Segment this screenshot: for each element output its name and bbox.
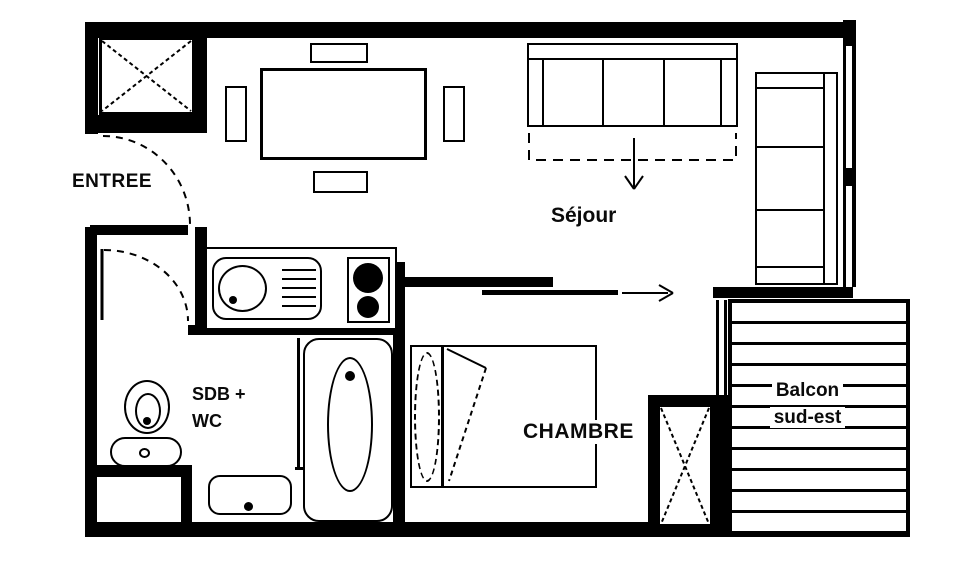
washbasin-drain-dot [244, 502, 253, 511]
drainboard-line [282, 305, 316, 307]
pillow-icon [414, 352, 440, 482]
drainboard-line [282, 287, 316, 289]
drainboard-line [282, 296, 316, 298]
drainboard-line [282, 269, 316, 271]
sink-drain-dot [229, 296, 237, 304]
chair-left-icon [225, 86, 247, 142]
chair-top-icon [310, 43, 368, 63]
toilet-drain-dot [143, 417, 151, 425]
sofa-bed-extension-dashed [529, 133, 736, 160]
wall-closet-right [195, 36, 207, 133]
window-east-line-outer [843, 46, 846, 287]
sink-basin [218, 265, 267, 312]
chair-bottom-icon [313, 171, 368, 193]
balcon-label-line1: Balcon [772, 380, 843, 401]
burner-small [357, 296, 379, 318]
room-label-entree: ENTREE [72, 171, 152, 193]
wall-sliding-track [403, 277, 553, 287]
wall-shower-niche-right [181, 477, 192, 523]
room-label-sdb: SDB + WC [192, 381, 246, 435]
sliding-door-panel [482, 290, 618, 295]
wall-bathtub-side-foot [295, 467, 303, 470]
room-label-chambre: CHAMBRE [520, 420, 637, 444]
door-swing-arc-sdb [104, 250, 188, 321]
wall-closet-bottom [85, 115, 207, 133]
balcon-label-line2: sud-est [770, 407, 846, 428]
wall-hall-sdb [90, 225, 188, 235]
wall-bottom [85, 522, 733, 537]
wall-sejour-chambre [713, 287, 853, 298]
arrow-right-head [659, 293, 673, 301]
window-chambre-line-inner [724, 300, 727, 395]
wall-duct-left [648, 395, 657, 528]
bidet-hole [139, 448, 150, 458]
arrow-down-head [634, 176, 643, 189]
burner-large [353, 263, 383, 293]
room-label-sejour: Séjour [551, 204, 616, 228]
wall-window-corner [843, 20, 856, 46]
wall-bathtub-side [297, 338, 300, 470]
arrow-right-head [659, 285, 673, 293]
sdb-label-line2: WC [192, 408, 246, 435]
bathtub-drain-dot [345, 371, 355, 381]
crossed-duct-icon [657, 404, 713, 527]
chaise-sofa-icon [755, 72, 838, 285]
dining-table-icon [260, 68, 427, 160]
sofa-three-seat-icon [527, 43, 738, 127]
window-chambre-line-outer [716, 300, 719, 395]
floor-plan: Balcon sud-est [0, 0, 958, 575]
chair-right-icon [443, 86, 465, 142]
room-label-balcon: Balcon sud-est [745, 377, 870, 431]
sdb-label-line1: SDB + [192, 381, 246, 408]
crossed-closet-icon [99, 37, 195, 115]
window-east-line-inner [852, 46, 856, 287]
arrow-down-head [625, 176, 634, 189]
drainboard-line [282, 278, 316, 280]
wall-left-lower [85, 227, 97, 537]
bed-headboard-line [441, 345, 444, 488]
